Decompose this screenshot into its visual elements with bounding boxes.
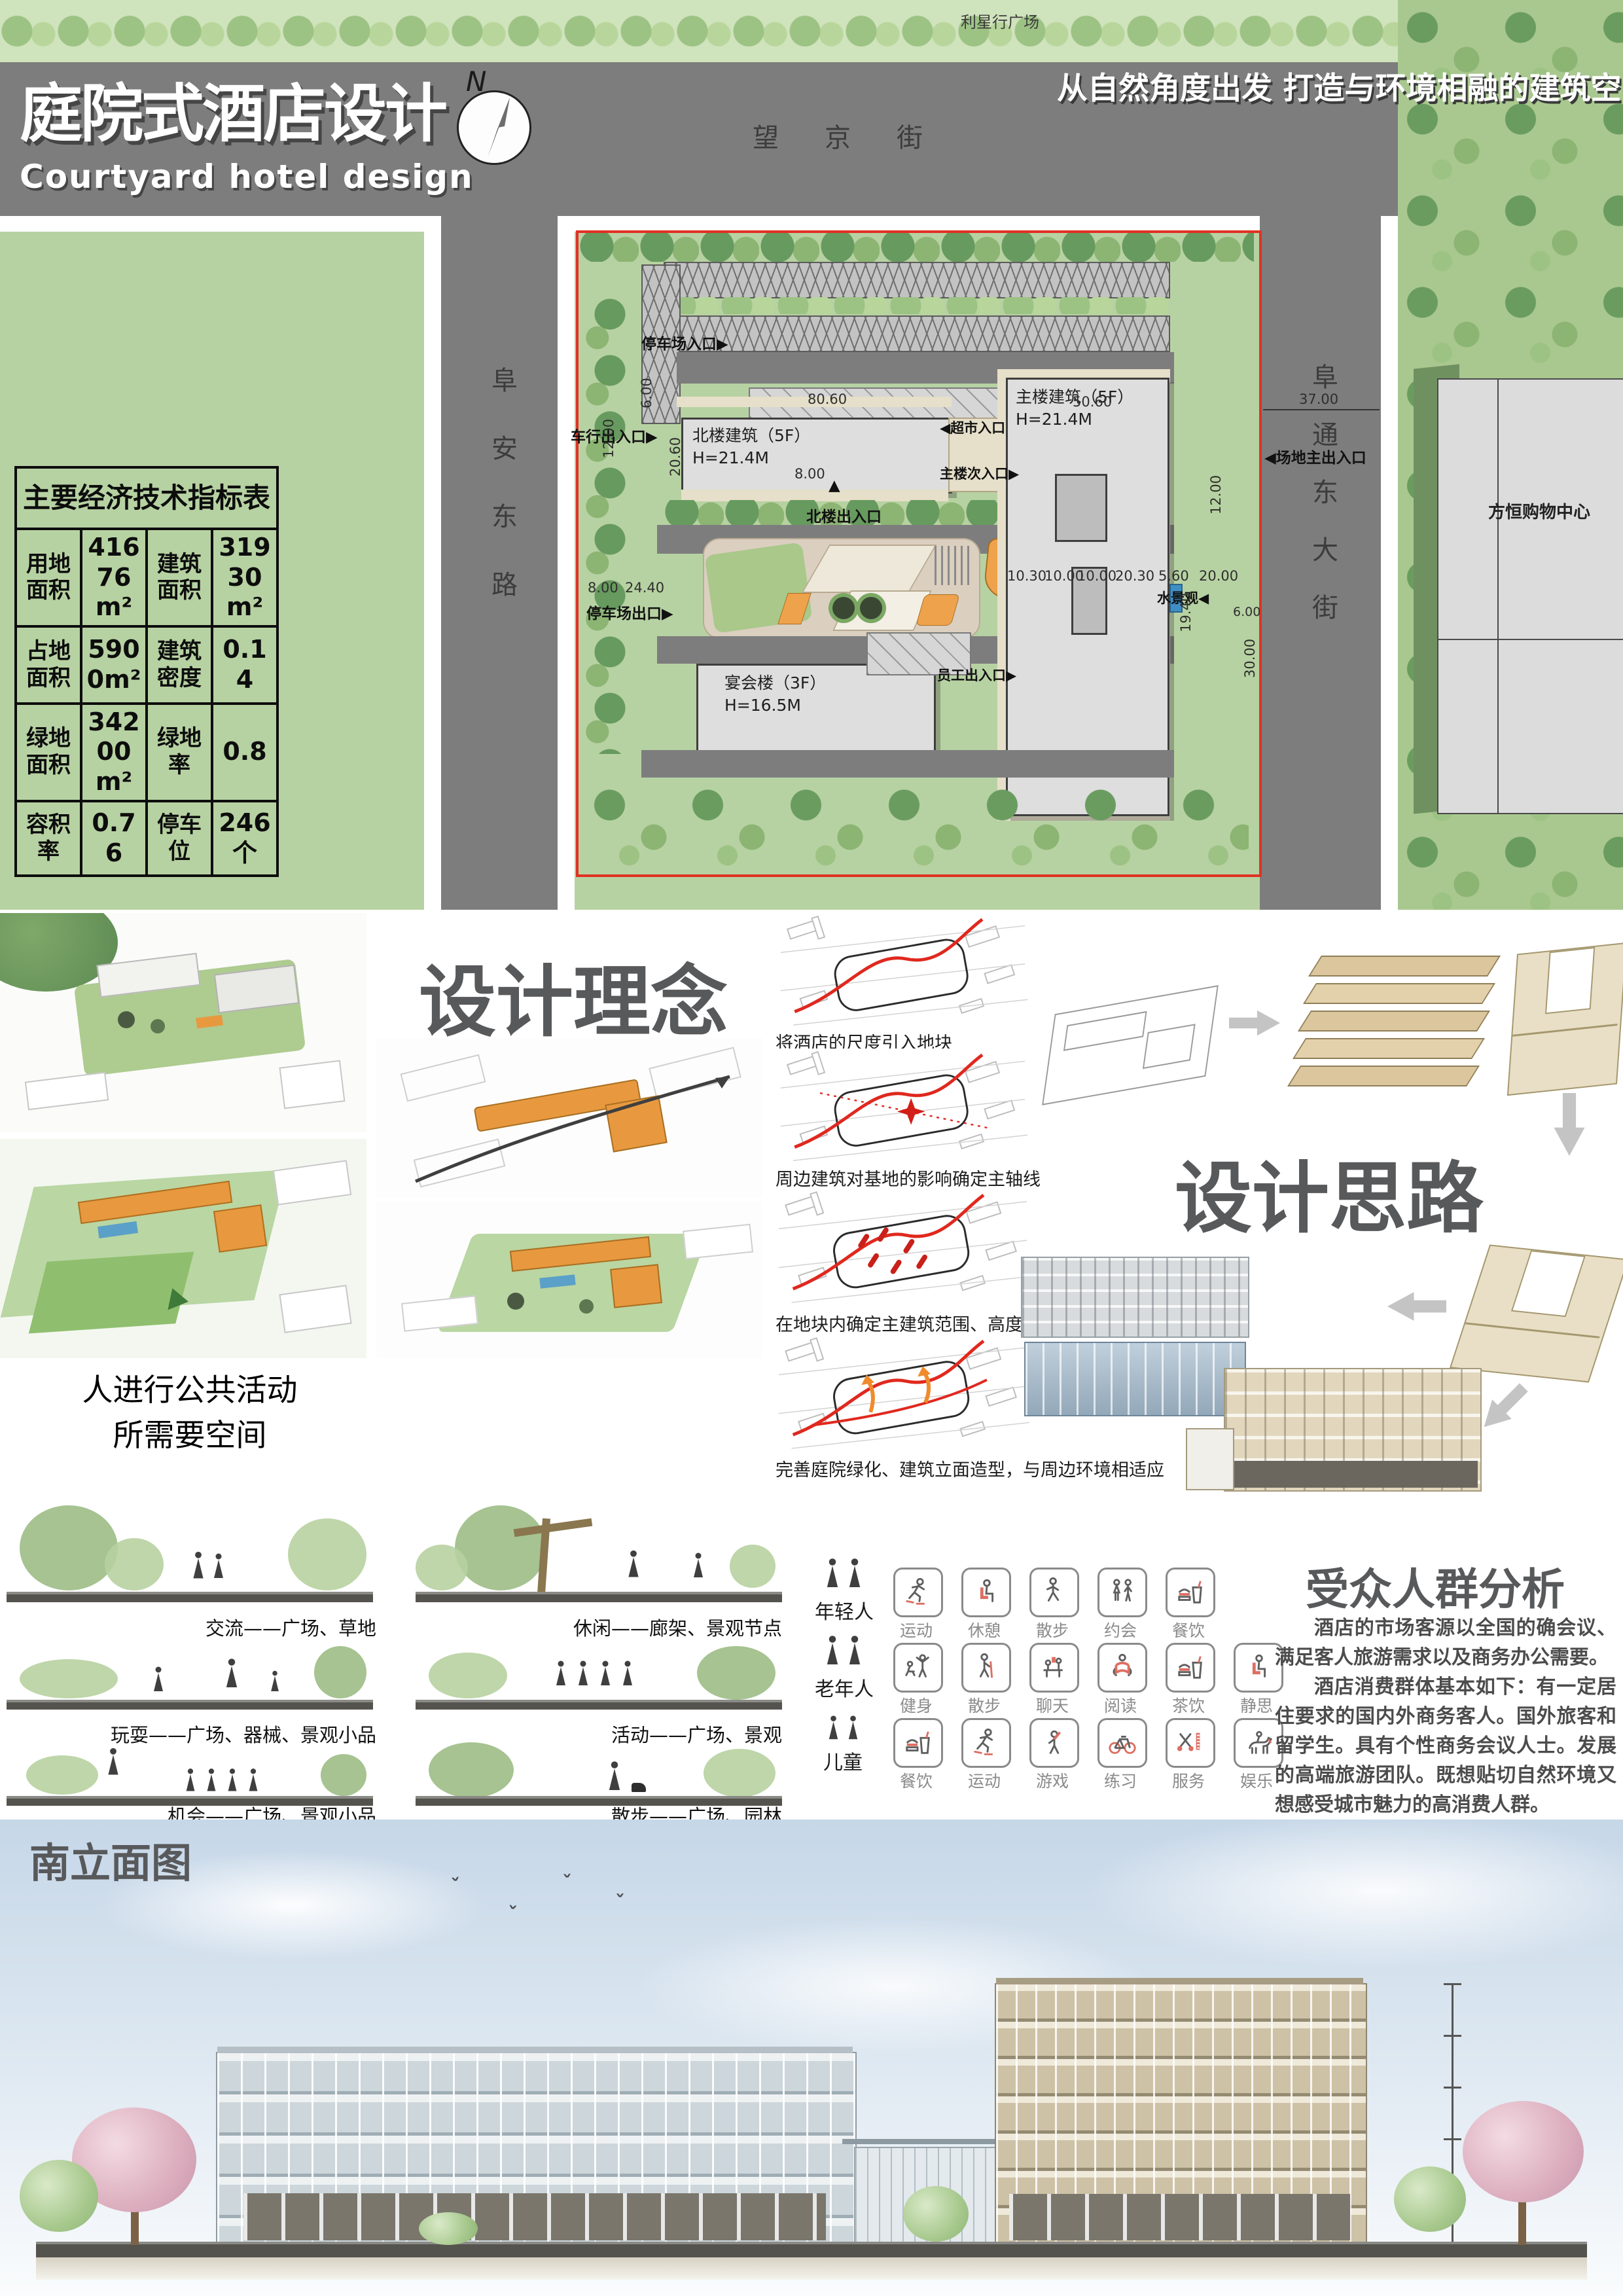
aerial-render-2 <box>0 1139 366 1358</box>
dim-2060: 20.60 <box>668 437 683 476</box>
inner-drive-bottom <box>641 750 1174 778</box>
tea-icon <box>1166 1643 1215 1693</box>
left-sidewalk-b <box>558 216 575 910</box>
elderly-silhouette-icon <box>846 1635 864 1666</box>
strip-communication <box>7 1505 373 1610</box>
young-silhouette-icon <box>823 1558 842 1589</box>
dim-6b: 6.00 <box>1233 605 1260 619</box>
icon-label: 散步 <box>961 1693 1007 1717</box>
road-dim-line <box>1263 409 1380 410</box>
dim-560: 5.60 <box>1158 568 1189 584</box>
south-green <box>585 778 1249 869</box>
concept-step-4-caption: 完善庭院绿化、建筑立面造型，与周边环境相适应 <box>776 1456 1164 1481</box>
icon-label: 娱乐 <box>1234 1768 1279 1792</box>
flow-arrow-downleft-icon <box>1472 1376 1535 1439</box>
activity-section: 交流——广场、草地 玩耍——广场、器械、景观小品 机会——广场、景观小品 <box>0 1492 1623 1820</box>
banquet-name: 宴会楼（3F） <box>724 673 826 692</box>
strip-communication-caption: 交流——广场、草地 <box>105 1613 376 1641</box>
west-green-band <box>579 296 641 754</box>
indicator-table: 主要经济技术指标表 用地面积 41676m² 建筑面积 31930m² 占地面积… <box>14 466 279 877</box>
table-cell: 绿地面积 <box>16 704 81 801</box>
massing-u-block-top <box>1507 942 1623 1096</box>
north-building: 北楼建筑（5F） H=21.4M <box>681 418 952 493</box>
main-court-a <box>1055 474 1107 542</box>
food-drink-icon <box>893 1718 943 1768</box>
dim-8b: 8.00 <box>588 580 618 596</box>
icon-label: 练习 <box>1097 1768 1143 1792</box>
strip-activity-caption: 活动——广场、景观 <box>510 1720 782 1748</box>
bird-icon: ˇ <box>506 1903 518 1926</box>
audience-title: 受众人群分析 <box>1306 1554 1565 1617</box>
table-cell: 0.14 <box>212 626 277 704</box>
table-cell: 建筑密度 <box>147 626 212 704</box>
bicycle-icon <box>1097 1718 1147 1768</box>
dim-30: 30.00 <box>1242 639 1258 678</box>
floor-slab-stack <box>1293 956 1508 1119</box>
icon-label: 健身 <box>893 1693 939 1717</box>
pink-tree-icon <box>1463 2101 1584 2202</box>
cane-walker-icon <box>961 1643 1011 1693</box>
elevation-ground <box>36 2242 1587 2257</box>
massing-plan-outline <box>1042 985 1219 1105</box>
icon-label: 散步 <box>1029 1618 1075 1641</box>
concept-note-line2: 所需要空间 <box>39 1410 340 1455</box>
poster-title-en: Courtyard hotel design <box>20 158 478 196</box>
dim-6a: 6.00 <box>639 378 654 408</box>
group-children-label: 儿童 <box>823 1746 863 1775</box>
reader-icon <box>1097 1643 1147 1693</box>
north-entry-label: 北楼出入口 <box>806 504 882 526</box>
thinking-title: 设计思路 <box>1175 1136 1484 1247</box>
table-cell: 容积率 <box>16 801 81 876</box>
hotel-render <box>1224 1368 1482 1492</box>
concept-diagram-b <box>376 1201 762 1358</box>
young-silhouette-icon <box>846 1558 864 1589</box>
mall-label: 方恒购物中心 <box>1488 499 1590 523</box>
poster-title-block: 庭院式酒店设计 Courtyard hotel design <box>20 63 478 196</box>
main-secondary-entrance-label: 主楼次入口▶ <box>940 463 1019 483</box>
concept-step-1-diagram <box>774 913 1032 1028</box>
site-top-trees <box>579 233 1254 262</box>
table-cell: 0.8 <box>212 704 277 801</box>
icon-label: 茶饮 <box>1166 1693 1211 1717</box>
indicator-table-title: 主要经济技术指标表 <box>16 467 277 529</box>
staff-entrance-label: 员工出入口▶ <box>937 665 1016 685</box>
icon-label: 餐饮 <box>893 1768 939 1792</box>
concept-note: 人进行公共活动 所需要空间 <box>39 1365 340 1455</box>
icon-label: 游戏 <box>1029 1768 1075 1792</box>
presentation-board: 利星行广场 望京街 阜安东路 阜通东大街 37.00 方恒购物中心 <box>0 0 1623 2296</box>
concept-step-2-diagram <box>774 1049 1032 1163</box>
food-drink-icon <box>1166 1568 1215 1617</box>
dim-1940: 19.40 <box>1178 593 1194 632</box>
right-sidewalk <box>1381 216 1398 910</box>
dim-8a: 8.00 <box>794 466 825 482</box>
north-building-height: H=21.4M <box>692 448 769 467</box>
table-cell: 用地面积 <box>16 529 81 626</box>
north-building-name: 北楼建筑（5F） <box>692 426 810 445</box>
concept-step-2-caption: 周边建筑对基地的影响确定主轴线 <box>776 1165 1041 1191</box>
dim-5060: 50.60 <box>1073 394 1112 410</box>
icon-label: 餐饮 <box>1166 1618 1211 1641</box>
seated-person-icon <box>961 1568 1011 1617</box>
strip-leisure-caption: 休闲——廊架、景观节点 <box>510 1613 782 1641</box>
green-bush-icon <box>419 2212 478 2245</box>
site-boundary: 北楼建筑（5F） H=21.4M <box>576 230 1262 877</box>
dim-37: 37.00 <box>1299 391 1338 407</box>
flow-arrow-left-icon <box>1387 1289 1446 1323</box>
table-cell: 34200m² <box>81 704 147 801</box>
bird-icon: ˇ <box>562 1872 573 1895</box>
table-cell: 246个 <box>212 801 277 876</box>
walker-icon <box>1029 1568 1079 1617</box>
supermarket-entrance-label: ◀超市入口 <box>940 418 1005 437</box>
icon-label: 服务 <box>1166 1768 1211 1792</box>
child-silhouette-icon <box>826 1715 841 1741</box>
chat-icon <box>1029 1643 1079 1693</box>
icon-label: 静思 <box>1234 1693 1279 1717</box>
audience-paragraphs: 酒店的市场客源以全国的确会议、满足客人旅游需求以及商务办公需要。 酒店消费群体基… <box>1275 1613 1616 1820</box>
parking-row-a <box>664 262 1170 298</box>
icon-label: 聊天 <box>1029 1693 1075 1717</box>
courtyard <box>703 538 980 639</box>
dim-8060: 80.60 <box>808 391 847 407</box>
site-main-entrance-label: ◀场地主出入口 <box>1264 445 1366 467</box>
banquet-building: 宴会楼（3F） H=16.5M <box>696 664 936 753</box>
table-cell: 0.76 <box>81 801 147 876</box>
dim-12b: 12.00 <box>1208 475 1224 514</box>
north-entry-arrow: ▲ <box>829 477 840 494</box>
elevation-ground-base <box>36 2257 1587 2280</box>
elderly-silhouette-icon <box>823 1635 842 1666</box>
bird-icon: ˇ <box>615 1892 625 1914</box>
aerial-render-1 <box>0 913 366 1132</box>
strip-activity <box>416 1646 782 1718</box>
parking-trees-a <box>664 297 1168 314</box>
skater-icon <box>961 1718 1011 1768</box>
concept-step-3-diagram <box>774 1188 1032 1306</box>
green-tree-icon <box>20 2160 98 2232</box>
green-tree-icon <box>1394 2166 1466 2232</box>
audience-para-2: 酒店消费群体基本如下：有一定居住要求的国内外商务客人。国外旅客和留学生。具有个性… <box>1275 1672 1616 1820</box>
icon-label: 运动 <box>893 1618 939 1641</box>
table-cell: 31930m² <box>212 529 277 626</box>
concept-section: 设计理念 人进行公共活动 所需要空间 <box>0 910 1623 1492</box>
table-cell: 占地面积 <box>16 626 81 704</box>
elevation-title: 南立面图 <box>29 1830 192 1889</box>
dim-1030: 10.30 <box>1007 568 1046 584</box>
dim-10b: 10.00 <box>1077 568 1116 584</box>
elevation-section: 南立面图 ˇ ˇ ˇ ˇ <box>0 1820 1623 2296</box>
table-cell: 41676m² <box>81 529 147 626</box>
elevation-right-building <box>995 1983 1367 2244</box>
table-cell: 5900m² <box>81 626 147 704</box>
parking-exit-label: 停车场出口▶ <box>586 601 673 623</box>
concept-step-4-diagram <box>774 1334 1032 1452</box>
parking-row-b <box>664 315 1170 352</box>
massing-u-block-mid <box>1450 1245 1623 1383</box>
parking-entrance-label: 停车场入口▶ <box>641 331 728 353</box>
poster-title-cn: 庭院式酒店设计 <box>20 63 478 154</box>
street-name-top: 望京街 <box>753 117 969 154</box>
couple-icon <box>1097 1568 1147 1617</box>
skater-icon <box>893 1568 943 1617</box>
table-cell: 停车位 <box>147 801 212 876</box>
left-sidewalk-a <box>424 216 441 910</box>
icon-label: 休憩 <box>961 1618 1007 1641</box>
dim-20: 20.00 <box>1199 568 1238 584</box>
main-building-height: H=21.4M <box>1016 410 1092 429</box>
bird-icon: ˇ <box>450 1874 463 1899</box>
facade-render-blue <box>1024 1342 1246 1416</box>
group-young-label: 年轻人 <box>815 1596 874 1624</box>
north-green-strip <box>0 0 1433 62</box>
icon-label: 约会 <box>1097 1618 1143 1641</box>
street-name-left: 阜安东路 <box>483 367 521 639</box>
barber-icon <box>1166 1718 1215 1768</box>
strip-play <box>7 1646 373 1718</box>
bat-player-icon <box>1029 1718 1079 1768</box>
green-bush-icon <box>903 2186 969 2242</box>
site-plan-section: 利星行广场 望京街 阜安东路 阜通东大街 37.00 方恒购物中心 <box>0 0 1623 910</box>
group-elderly-label: 老年人 <box>815 1673 874 1702</box>
concept-diagram-a <box>376 1037 762 1198</box>
flow-arrow-down-icon <box>1551 1093 1588 1156</box>
table-cell: 绿地率 <box>147 704 212 801</box>
banquet-height: H=16.5M <box>724 696 801 715</box>
elevation-left-building <box>216 2052 857 2244</box>
concept-note-line1: 人进行公共活动 <box>39 1365 340 1410</box>
top-sidewalk <box>0 216 1450 232</box>
dim-2030: 20.30 <box>1115 568 1154 584</box>
audience-para-1: 酒店的市场客源以全国的确会议、满足客人旅游需求以及商务办公需要。 <box>1275 1613 1616 1672</box>
neighbor-plaza-label: 利星行广场 <box>961 9 1039 32</box>
dim-12a: 12.00 <box>601 419 616 458</box>
mall-building: 方恒购物中心 <box>1437 378 1623 814</box>
fitness-icon <box>893 1643 943 1693</box>
dim-2440: 24.40 <box>625 580 664 596</box>
concept-title: 设计理念 <box>419 939 728 1051</box>
flow-arrow-right-icon <box>1229 1008 1280 1038</box>
strip-leisure <box>416 1505 782 1610</box>
child-silhouette-icon <box>846 1715 861 1741</box>
facade-render-gray <box>1021 1257 1249 1338</box>
slogan: 从自然角度出发 打造与环境相融的建筑空间 <box>1057 63 1623 108</box>
table-cell: 建筑面积 <box>147 529 212 626</box>
icon-label: 阅读 <box>1097 1693 1143 1717</box>
icon-label: 运动 <box>961 1768 1007 1792</box>
